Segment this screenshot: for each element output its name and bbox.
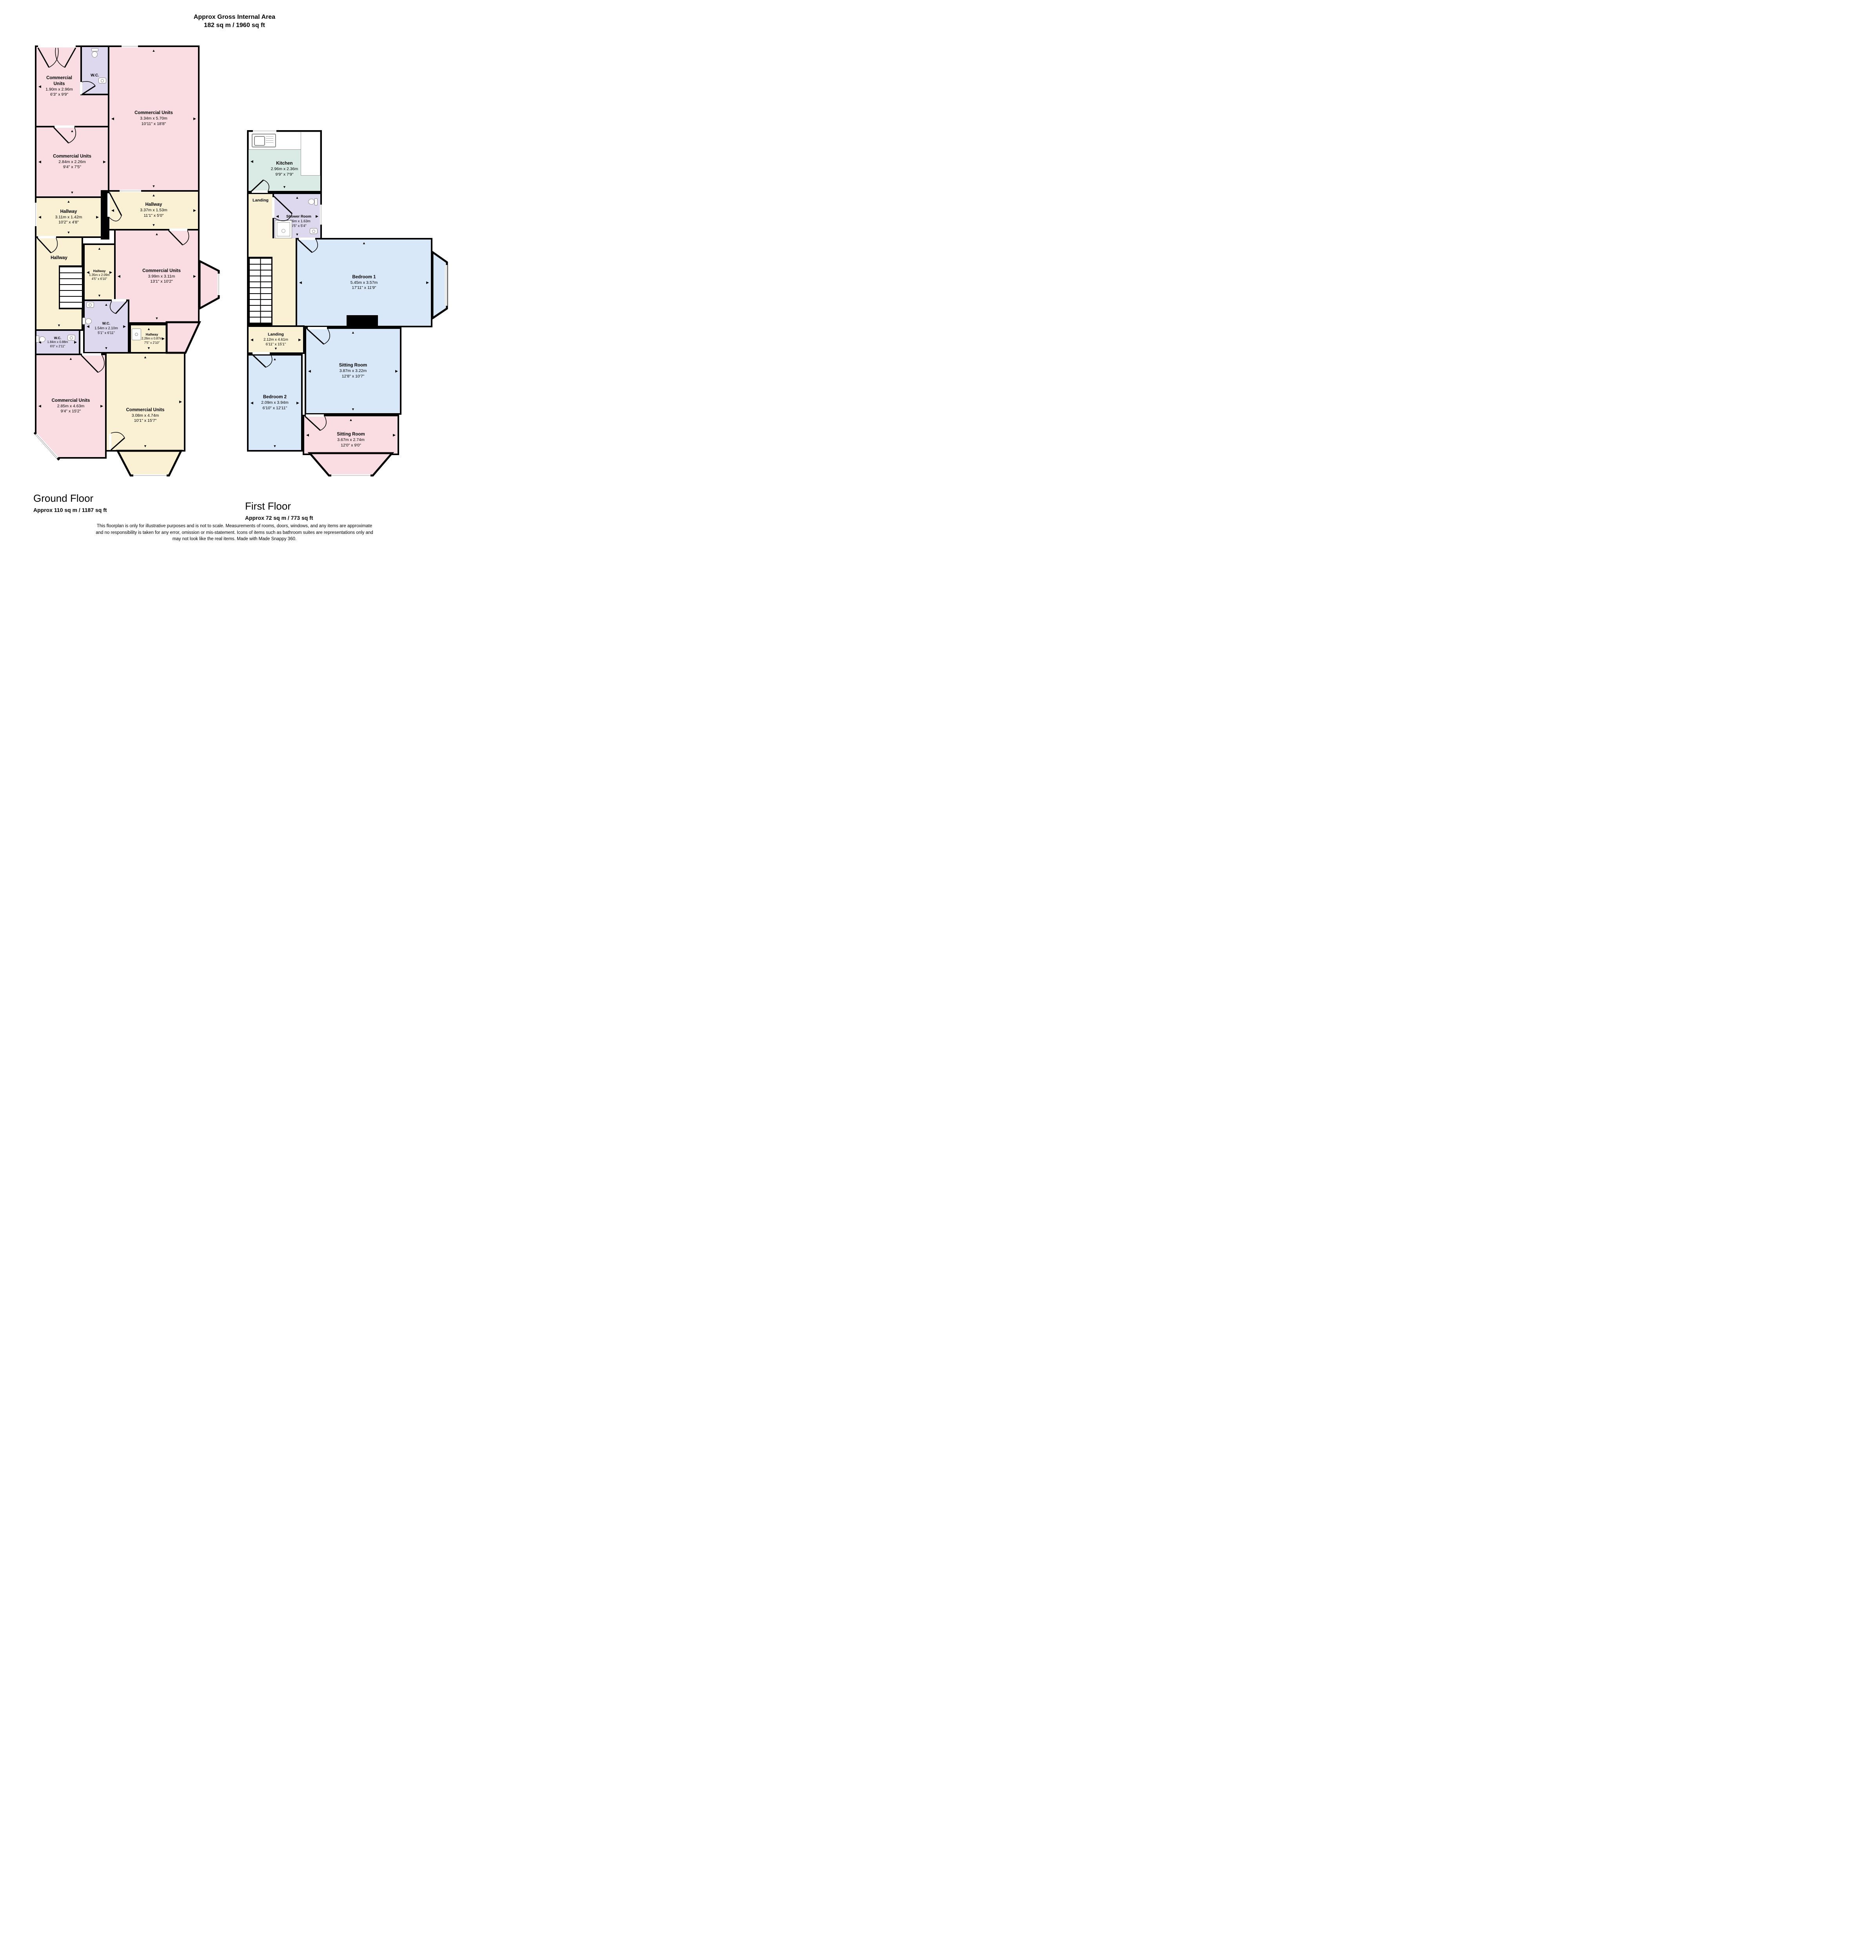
room-dim-imperial: 10'1" x 15'7" (126, 418, 165, 424)
room-dim-metric: 3.67m x 2.74m (337, 437, 365, 443)
first-floor-caption: First Floor Approx 72 sq m / 773 sq ft (245, 500, 313, 521)
room-dim-imperial: 5'1" x 6'11" (94, 331, 118, 336)
dim-arrow-right-icon: ▶ (74, 341, 77, 344)
dim-arrow-left-icon: ◀ (87, 270, 89, 274)
room-gf-hallway-small: Hallway 1.35m x 2.09m 4'5" x 6'10" ◀▶▲▼ (83, 243, 116, 301)
dim-arrow-up-icon: ▲ (143, 356, 147, 359)
dim-arrow-left-icon: ◀ (251, 338, 253, 341)
dim-arrow-up-icon: ▲ (98, 247, 101, 250)
room-name: Commercial Units (126, 407, 165, 413)
room-dim-metric: 2.26m x 0.87m (142, 337, 162, 341)
dim-arrow-up-icon: ▲ (71, 129, 74, 133)
room-label: Sitting Room 3.87m x 3.22m 12'8" x 10'7" (339, 363, 367, 379)
dim-arrow-down-icon: ▼ (296, 233, 299, 236)
room-dim-metric: 1.90m x 2.96m (43, 87, 75, 93)
room-label: Kitchen 2.96m x 2.36m 9'9" x 7'9" (271, 145, 298, 177)
dim-arrow-right-icon: ▶ (179, 400, 182, 404)
dim-arrow-down-icon: ▼ (98, 294, 101, 298)
room-gf-hallway-left: Hallway 3.11m x 1.42m 10'2" x 4'8" ◀▶▲▼ (35, 196, 102, 238)
room-dim-imperial: 10'2" x 4'8" (55, 220, 82, 225)
dim-arrow-right-icon: ▶ (109, 270, 112, 274)
room-name: W.C. (91, 73, 99, 78)
room-label: Landing 2.12m x 4.61m 6'11" x 15'1" (263, 332, 288, 347)
room-dim-metric: 2.85m x 4.63m (52, 404, 90, 409)
dim-arrow-up-icon: ▲ (349, 418, 353, 422)
room-label: Hallway 1.35m x 2.09m 4'5" x 6'10" (89, 263, 110, 281)
room-name: Sitting Room (337, 432, 365, 437)
dim-arrow-left-icon: ◀ (276, 214, 279, 218)
room-label: Bedroom 1 5.45m x 3.57m 17'11" x 11'9" (351, 274, 378, 291)
dim-arrow-left-icon: ◀ (38, 160, 41, 164)
room-dim-imperial: 9'4" x 7'5" (53, 165, 91, 170)
room-dim-imperial: 12'8" x 10'7" (339, 374, 367, 379)
dim-arrow-down-icon: ▼ (57, 324, 61, 327)
dim-arrow-left-icon: ◀ (111, 117, 114, 120)
dim-arrow-left-icon: ◀ (308, 369, 311, 373)
dim-arrow-down-icon: ▼ (105, 347, 108, 350)
dim-arrow-left-icon: ◀ (87, 325, 89, 328)
room-ff-bedroom-1: Bedroom 1 5.45m x 3.57m 17'11" x 11'9" ◀… (296, 238, 432, 327)
dim-arrow-left-icon: ◀ (38, 216, 41, 219)
dim-arrow-down-icon: ▼ (143, 445, 147, 448)
room-dim-imperial: 9'4" x 15'2" (52, 409, 90, 414)
dim-arrow-up-icon: ▲ (362, 241, 366, 245)
room-name: W.C. (94, 321, 118, 326)
room-label: Bedroom 2 2.09m x 3.94m 6'10" x 12'11" (261, 394, 288, 411)
room-name: Bedroom 2 (261, 394, 288, 400)
dim-arrow-right-icon: ▶ (393, 433, 396, 437)
room-dim-metric: 3.37m x 1.53m (140, 208, 167, 213)
sink-icon (310, 228, 318, 234)
dim-arrow-right-icon: ▶ (298, 338, 301, 341)
dim-arrow-left-icon: ◀ (299, 281, 302, 285)
room-dim-imperial: 6'0" x 2'11" (47, 345, 68, 348)
room-name: Commercial Units (134, 110, 173, 116)
dim-arrow-right-icon: ▶ (193, 275, 196, 278)
dim-arrow-down-icon: ▼ (71, 191, 74, 194)
room-label: Hallway 3.11m x 1.42m 10'2" x 4'8" (55, 209, 82, 225)
room-dim-metric: 3.34m x 5.70m (134, 116, 173, 122)
room-name: Hallway (140, 202, 167, 208)
toilet-icon (82, 318, 93, 325)
room-ff-landing-extension (272, 238, 297, 327)
room-label: Hallway (51, 238, 67, 261)
room-label: Commercial Units 3.99m x 3.11m 13'1" x 1… (133, 268, 181, 285)
dim-arrow-up-icon: ▲ (296, 196, 299, 200)
room-dim-imperial: 11'1" x 5'0" (140, 213, 167, 219)
room-name: Kitchen (271, 161, 298, 167)
dim-arrow-right-icon: ▶ (193, 209, 196, 212)
sink-icon (86, 302, 94, 308)
sink-icon (132, 328, 141, 340)
stairs-icon (59, 265, 83, 309)
room-ff-bedroom-2: Bedroom 2 2.09m x 3.94m 6'10" x 12'11" ◀… (247, 354, 303, 452)
room-gf-commercial-mid-left: Commercial Units 2.84m x 2.26m 9'4" x 7'… (35, 126, 109, 198)
dim-arrow-up-icon: ▲ (155, 232, 159, 236)
room-label: Hallway 3.37m x 1.53m 11'1" x 5'0" (140, 202, 167, 218)
ground-floor-caption: Ground Floor Approx 110 sq m / 1187 sq f… (33, 492, 107, 513)
room-dim-imperial: 4'5" x 6'10" (89, 277, 110, 281)
dim-arrow-right-icon: ▶ (193, 117, 196, 120)
room-label: Commercial Units 1.90m x 2.96m 6'3" x 9'… (43, 75, 75, 98)
dim-arrow-left-icon: ◀ (306, 433, 309, 437)
disclaimer-line-3: may not look like the real items. Made w… (0, 536, 469, 543)
room-dim-imperial: 7'5" x 2'10" (142, 341, 162, 345)
room-label: Sitting Room 3.67m x 2.74m 12'0" x 9'0" (337, 421, 365, 448)
room-gf-commercial-bottom-left: Commercial Units 2.85m x 4.63m 9'4" x 15… (35, 354, 107, 459)
dim-arrow-down-icon: ▼ (274, 347, 278, 350)
dim-arrow-up-icon: ▲ (69, 357, 73, 361)
dim-arrow-up-icon: ▲ (105, 303, 108, 307)
dim-arrow-up-icon: ▲ (152, 49, 156, 53)
kitchen-unit (301, 132, 320, 176)
dim-arrow-down-icon: ▼ (155, 317, 159, 320)
gross-internal-area-title: Approx Gross Internal Area (0, 13, 469, 22)
dim-arrow-right-icon: ▶ (316, 214, 318, 218)
dim-arrow-down-icon: ▼ (283, 185, 286, 189)
room-label: W.C. 1.54m x 2.10m 5'1" x 6'11" (94, 318, 118, 336)
dim-arrow-up-icon: ▲ (273, 358, 277, 361)
dim-arrow-up-icon: ▲ (152, 194, 156, 197)
dim-arrow-up-icon: ▲ (67, 200, 71, 203)
disclaimer: This floorplan is only for illustrative … (0, 523, 469, 543)
room-name: Commercial Units (43, 75, 75, 87)
toilet-icon (36, 336, 46, 343)
gross-internal-area-value: 182 sq m / 1960 sq ft (0, 22, 469, 30)
dim-arrow-left-icon: ◀ (38, 85, 41, 88)
stairs-icon (249, 257, 272, 324)
room-gf-hallway-center: Hallway 3.37m x 1.53m 11'1" x 5'0" ◀▶▲▼ (108, 190, 200, 230)
room-label: Commercial Units 2.85m x 4.63m 9'4" x 15… (52, 398, 90, 414)
dim-arrow-down-icon: ▼ (273, 445, 277, 448)
disclaimer-line-1: This floorplan is only for illustrative … (0, 523, 469, 530)
dim-arrow-down-icon: ▼ (351, 408, 355, 411)
room-name: Hallway (51, 255, 67, 261)
toilet-icon (91, 48, 98, 58)
shower-tray-icon (275, 220, 292, 238)
dim-arrow-left-icon: ◀ (118, 275, 120, 278)
dim-arrow-left-icon: ◀ (251, 160, 253, 163)
room-label: W.C. (91, 73, 99, 78)
dim-arrow-up-icon: ▲ (147, 327, 151, 331)
room-name: Commercial Units (142, 268, 181, 274)
room-name: Bedroom 1 (351, 274, 378, 280)
room-name: Hallway (55, 209, 82, 215)
room-name: Commercial Units (52, 398, 90, 404)
first-floor-area: Approx 72 sq m / 773 sq ft (245, 515, 313, 521)
sink-icon (98, 78, 106, 83)
room-dim-metric: 2.09m x 3.94m (261, 400, 288, 406)
dim-arrow-left-icon: ◀ (38, 405, 41, 408)
dim-arrow-right-icon: ▶ (123, 325, 126, 328)
dim-arrow-down-icon: ▼ (152, 223, 156, 227)
room-dim-imperial: 12'0" x 9'0" (337, 443, 365, 448)
dim-arrow-up-icon: ▲ (351, 331, 355, 334)
kitchen-sink-icon (252, 134, 276, 147)
room-dim-metric: 3.87m x 3.22m (339, 368, 367, 374)
room-dim-metric: 2.84m x 2.26m (53, 160, 91, 165)
room-ff-sitting-room-2: Sitting Room 3.67m x 2.74m 12'0" x 9'0" … (303, 415, 399, 455)
room-label: Commercial Units 2.84m x 2.26m 9'4" x 7'… (53, 154, 91, 170)
room-name: W.C. (47, 336, 68, 340)
room-ff-sitting-room-1: Sitting Room 3.87m x 3.22m 12'8" x 10'7"… (305, 327, 401, 415)
room-gf-commercial-bottom-right: Commercial Units 3.08m x 4.74m 10'1" x 1… (105, 352, 185, 452)
room-name: Sitting Room (339, 363, 367, 368)
toilet-icon (307, 198, 318, 205)
room-gf-commercial-large: Commercial Units 3.34m x 5.70m 10'11" x … (108, 45, 200, 192)
dim-arrow-right-icon: ▶ (395, 369, 398, 373)
room-dim-imperial: 10'11" x 18'8" (134, 122, 173, 127)
floorplan-page: Approx Gross Internal Area 182 sq m / 19… (0, 0, 469, 552)
room-dim-metric: 2.96m x 2.36m (271, 167, 298, 172)
page-title: Approx Gross Internal Area 182 sq m / 19… (0, 13, 469, 30)
dim-arrow-right-icon: ▶ (426, 281, 429, 285)
room-label: W.C. 1.84m x 0.88m 6'0" x 2'11" (47, 336, 68, 348)
room-name: Landing (252, 198, 269, 203)
room-dim-imperial: 9'9" x 7'9" (271, 172, 298, 178)
wall-segment (101, 190, 109, 240)
room-name: Shower Room (286, 214, 311, 219)
dim-arrow-right-icon: ▶ (103, 160, 106, 164)
room-label: Commercial Units 3.08m x 4.74m 10'1" x 1… (126, 380, 165, 424)
room-name: Commercial Units (53, 154, 91, 160)
room-name: Hallway (142, 332, 162, 337)
room-dim-metric: 1.84m x 0.88m (47, 340, 68, 344)
room-dim-imperial: 17'11" x 11'9" (351, 285, 378, 291)
dim-arrow-right-icon: ▶ (96, 216, 99, 219)
ground-floor-title: Ground Floor (33, 492, 107, 505)
room-dim-imperial: 6'10" x 12'11" (261, 406, 288, 411)
room-name: Landing (263, 332, 288, 338)
room-dim-metric: 1.35m x 2.09m (89, 273, 110, 277)
dim-arrow-left-icon: ◀ (251, 401, 253, 405)
dim-arrow-down-icon: ▼ (147, 347, 151, 350)
dim-arrow-down-icon: ▼ (67, 231, 71, 234)
chimney-breast (347, 315, 378, 328)
room-dim-metric: 5.45m x 3.57m (351, 280, 378, 286)
dim-arrow-right-icon: ▶ (100, 405, 103, 408)
room-dim-metric: 3.08m x 4.74m (126, 413, 165, 419)
disclaimer-line-2: and no responsibility is taken for any e… (0, 530, 469, 536)
dim-arrow-down-icon: ▼ (152, 185, 156, 188)
room-dim-metric: 2.12m x 4.61m (263, 338, 288, 342)
room-dim-metric: 3.11m x 1.42m (55, 215, 82, 220)
room-label: Commercial Units 3.34m x 5.70m 10'11" x … (134, 110, 173, 127)
dim-arrow-left-icon: ◀ (111, 209, 114, 212)
ground-floor-area: Approx 110 sq m / 1187 sq ft (33, 507, 107, 513)
room-dim-imperial: 13'1" x 10'2" (142, 279, 181, 285)
sink-icon (67, 335, 75, 341)
room-ff-landing-lower: Landing 2.12m x 4.61m 6'11" x 15'1" ◀▶▼ (247, 325, 305, 354)
room-dim-imperial: 6'3" x 9'9" (43, 92, 75, 98)
room-name: Hallway (89, 269, 110, 273)
dim-arrow-right-icon: ▶ (162, 337, 165, 341)
room-dim-metric: 3.99m x 3.11m (142, 274, 181, 279)
dim-arrow-right-icon: ▶ (296, 401, 299, 405)
first-floor-title: First Floor (245, 500, 313, 512)
room-label: Landing (252, 194, 269, 203)
room-dim-metric: 1.54m x 2.10m (94, 326, 118, 331)
